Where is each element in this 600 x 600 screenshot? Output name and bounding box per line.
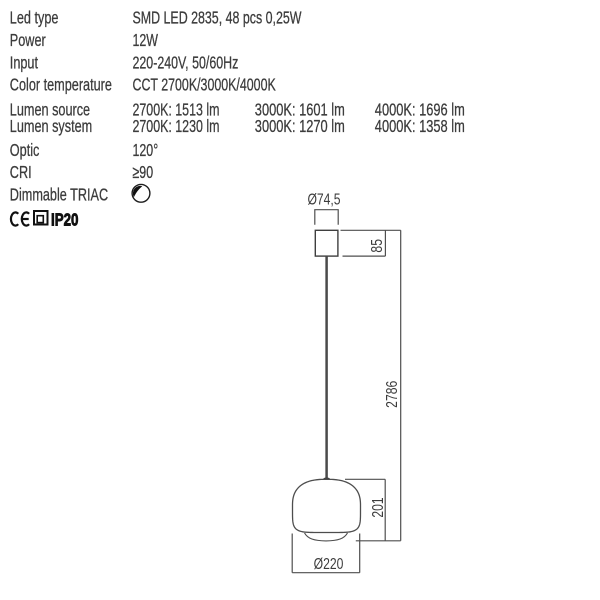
- svg-text:4000K: 1358 lm: 4000K: 1358 lm: [375, 117, 465, 136]
- svg-text:201: 201: [370, 497, 388, 517]
- svg-text:Color temperature: Color temperature: [10, 76, 112, 95]
- svg-text:3000K: 1270 lm: 3000K: 1270 lm: [255, 117, 345, 136]
- svg-text:Ø74,5: Ø74,5: [307, 191, 340, 209]
- svg-text:CCT 2700K/3000K/4000K: CCT 2700K/3000K/4000K: [133, 76, 276, 96]
- svg-text:CRI: CRI: [10, 163, 32, 182]
- svg-text:2700K: 1230 lm: 2700K: 1230 lm: [133, 117, 220, 137]
- svg-text:120°: 120°: [133, 141, 159, 161]
- svg-text:IP20: IP20: [51, 211, 79, 230]
- svg-text:85: 85: [368, 239, 386, 253]
- svg-text:Lumen system: Lumen system: [10, 117, 92, 136]
- svg-text:Input: Input: [10, 53, 39, 72]
- svg-text:≥90: ≥90: [133, 163, 154, 183]
- svg-text:Optic: Optic: [10, 141, 40, 160]
- svg-text:12W: 12W: [133, 31, 159, 51]
- svg-text:Ø220: Ø220: [314, 555, 344, 573]
- svg-text:220-240V, 50/60Hz: 220-240V, 50/60Hz: [133, 53, 239, 73]
- svg-text:Led type: Led type: [10, 9, 59, 28]
- svg-text:SMD LED 2835, 48 pcs 0,25W: SMD LED 2835, 48 pcs 0,25W: [133, 9, 303, 29]
- svg-text:Dimmable TRIAC: Dimmable TRIAC: [10, 186, 108, 205]
- svg-text:Power: Power: [10, 31, 46, 50]
- svg-text:2786: 2786: [383, 381, 401, 408]
